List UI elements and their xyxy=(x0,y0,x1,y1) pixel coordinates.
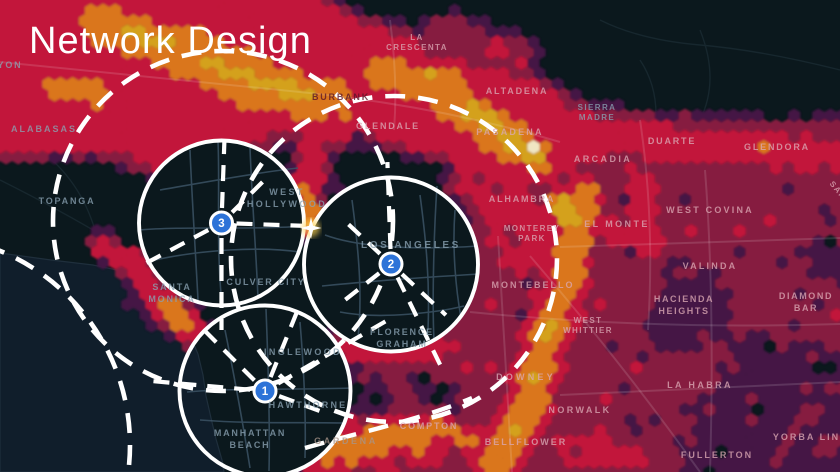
svg-text:FULLERTON: FULLERTON xyxy=(681,450,753,460)
svg-text:NORWALK: NORWALK xyxy=(548,405,611,415)
svg-text:FLORENCEGRAHAM: FLORENCEGRAHAM xyxy=(370,327,434,349)
svg-text:YON: YON xyxy=(0,60,22,70)
svg-text:ARCADIA: ARCADIA xyxy=(574,154,632,164)
svg-text:VALINDA: VALINDA xyxy=(683,261,738,271)
svg-text:2: 2 xyxy=(388,259,394,271)
svg-text:DOWNEY: DOWNEY xyxy=(496,372,556,382)
svg-text:BELLFLOWER: BELLFLOWER xyxy=(485,437,568,447)
svg-text:3: 3 xyxy=(218,218,224,230)
svg-text:1: 1 xyxy=(262,386,269,398)
svg-text:LOS ANGELES: LOS ANGELES xyxy=(361,240,461,251)
svg-text:DUARTE: DUARTE xyxy=(648,136,696,146)
svg-text:GLENDALE: GLENDALE xyxy=(356,121,420,131)
svg-text:COMPTON: COMPTON xyxy=(400,421,458,431)
svg-text:ALTADENA: ALTADENA xyxy=(486,86,549,96)
svg-text:CULVER CITY: CULVER CITY xyxy=(226,277,305,287)
svg-text:GARDENA: GARDENA xyxy=(314,436,378,446)
svg-text:SANTAMONICA: SANTAMONICA xyxy=(148,282,195,304)
svg-text:SIERRAMADRE: SIERRAMADRE xyxy=(578,103,617,122)
svg-text:WEST COVINA: WEST COVINA xyxy=(666,205,754,215)
svg-text:LA HABRA: LA HABRA xyxy=(667,380,733,390)
svg-text:YORBA LINDA: YORBA LINDA xyxy=(773,432,840,442)
svg-text:BURBANK: BURBANK xyxy=(312,92,370,102)
svg-text:EL MONTE: EL MONTE xyxy=(584,219,650,229)
svg-text:PASADENA: PASADENA xyxy=(476,127,543,137)
svg-text:MONTEBELLO: MONTEBELLO xyxy=(492,280,575,290)
svg-text:HACIENDAHEIGHTS: HACIENDAHEIGHTS xyxy=(654,294,714,316)
svg-text:HAWTHORNE: HAWTHORNE xyxy=(269,400,348,410)
svg-text:ALHAMBRA: ALHAMBRA xyxy=(489,194,555,204)
svg-text:TOPANGA: TOPANGA xyxy=(39,196,96,206)
svg-text:GLENDORA: GLENDORA xyxy=(744,142,810,152)
svg-text:Network Design: Network Design xyxy=(29,20,312,62)
svg-text:ALABASAS: ALABASAS xyxy=(11,124,77,134)
svg-text:INGLEWOOD: INGLEWOOD xyxy=(264,347,342,357)
